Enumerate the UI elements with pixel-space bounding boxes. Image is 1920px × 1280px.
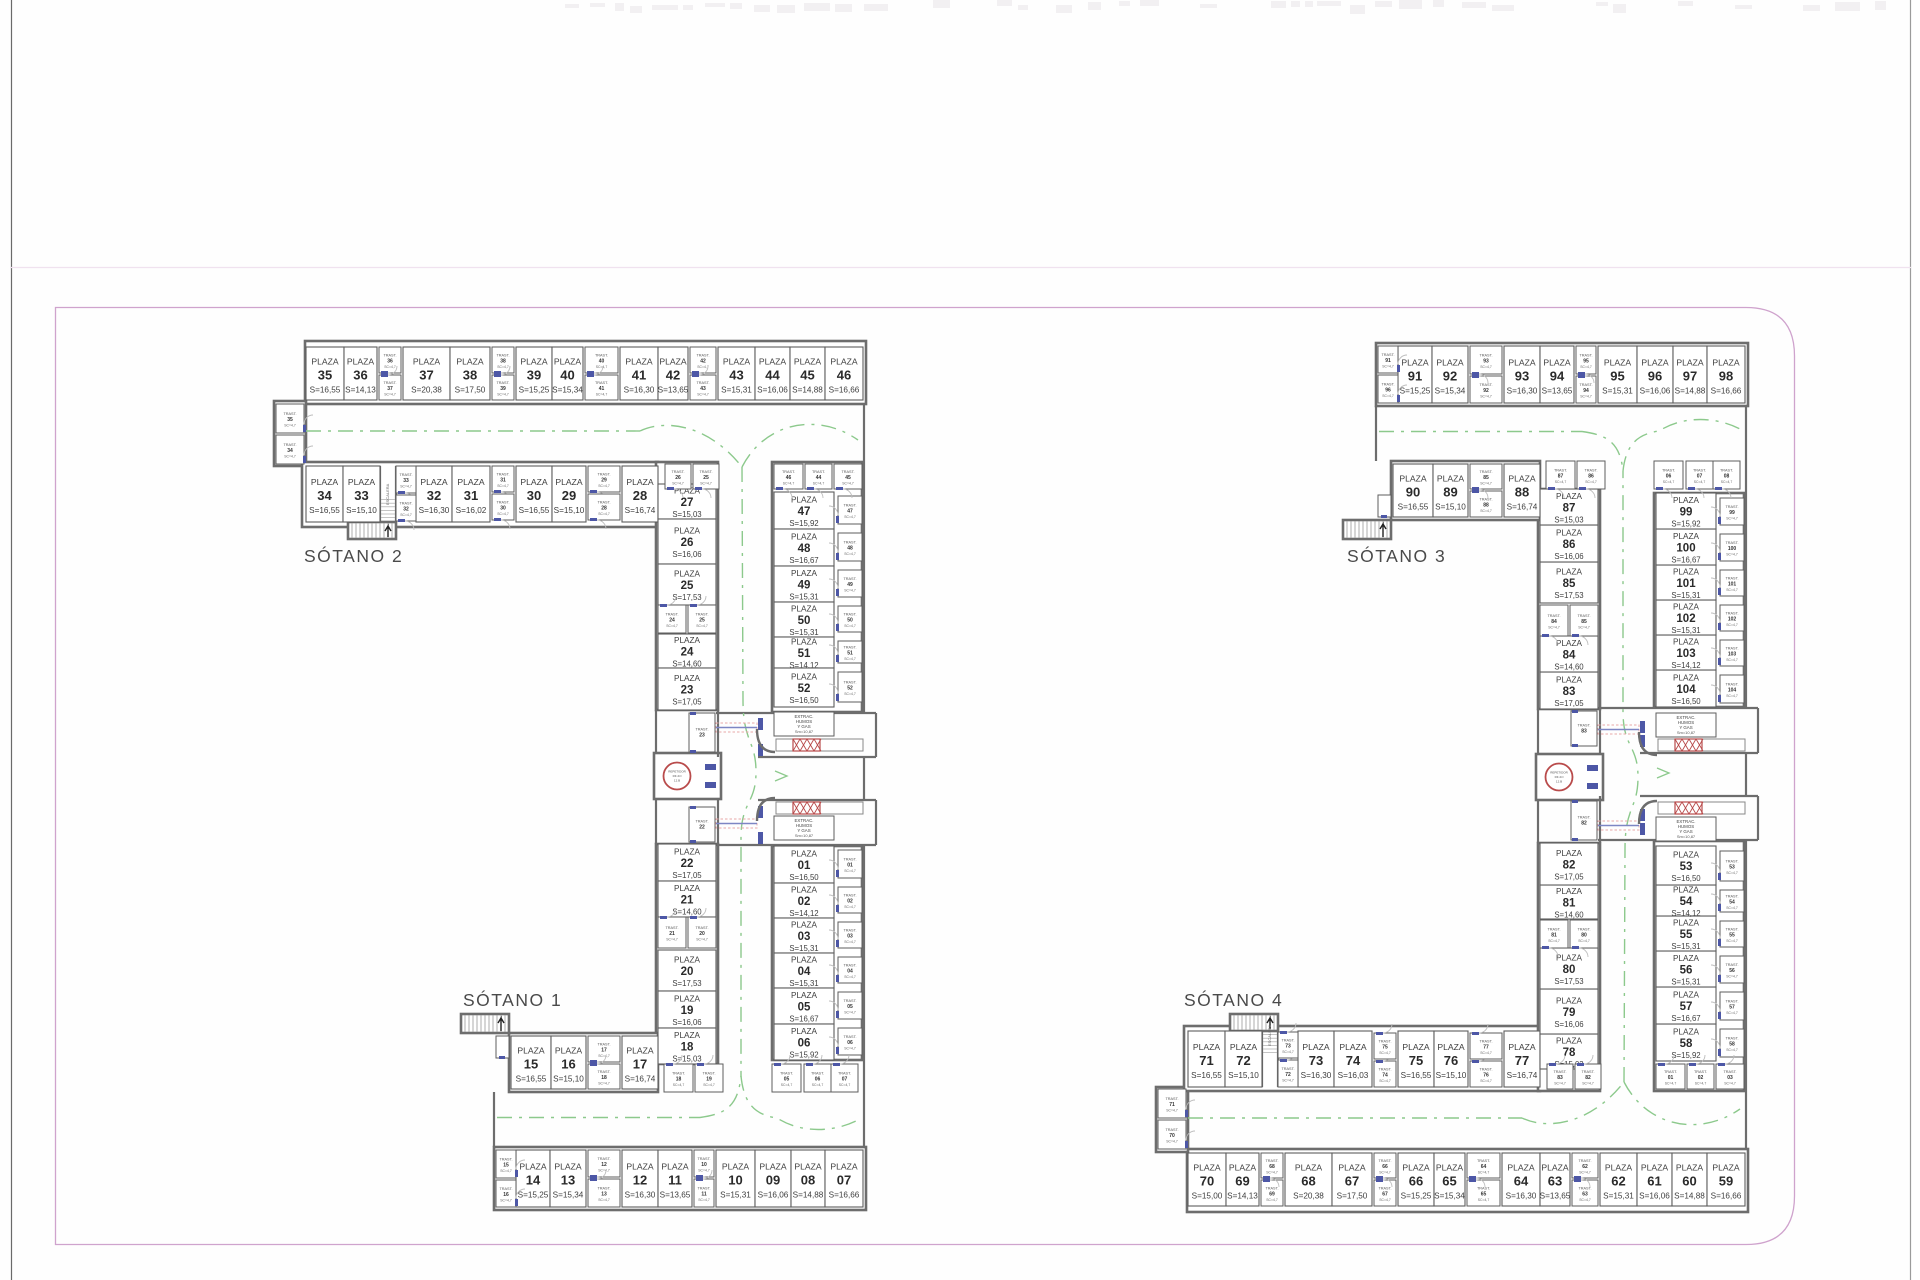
svg-text:SC=4,7: SC=4,7 <box>497 512 509 516</box>
svg-text:SC=4,7: SC=4,7 <box>497 365 509 369</box>
svg-text:08: 08 <box>1724 474 1730 480</box>
svg-text:S=16,30: S=16,30 <box>1507 387 1538 396</box>
svg-text:45: 45 <box>800 368 814 383</box>
svg-text:SC=4,7: SC=4,7 <box>703 1083 715 1087</box>
svg-text:S=17,05: S=17,05 <box>1554 873 1584 882</box>
svg-text:65: 65 <box>1481 1192 1487 1198</box>
svg-text:TRAST.: TRAST. <box>1723 1070 1736 1074</box>
svg-text:S=15,34: S=15,34 <box>552 386 583 395</box>
svg-text:S=15,25: S=15,25 <box>518 1191 549 1200</box>
svg-text:S=16,67: S=16,67 <box>1671 1014 1700 1023</box>
svg-text:SÓTANO 2: SÓTANO 2 <box>304 545 403 566</box>
svg-text:70: 70 <box>1200 1174 1214 1189</box>
svg-text:15: 15 <box>503 1163 509 1169</box>
svg-text:14: 14 <box>526 1173 541 1188</box>
svg-text:84: 84 <box>1551 619 1557 625</box>
svg-text:S=16,30: S=16,30 <box>1301 1071 1332 1080</box>
svg-text:S=14,88: S=14,88 <box>793 1191 824 1200</box>
svg-text:29: 29 <box>562 488 576 503</box>
svg-text:20: 20 <box>681 966 694 978</box>
svg-text:01: 01 <box>1668 1075 1674 1081</box>
svg-text:PLAZA: PLAZA <box>674 636 700 645</box>
svg-text:TRAST.: TRAST. <box>1662 469 1675 473</box>
svg-text:PLAZA: PLAZA <box>311 357 338 367</box>
svg-text:54: 54 <box>1680 896 1693 908</box>
svg-text:SC=4,7: SC=4,7 <box>697 365 709 369</box>
svg-text:74: 74 <box>1382 1073 1388 1079</box>
svg-text:S=15,31: S=15,31 <box>789 593 818 602</box>
svg-text:SC=4,7: SC=4,7 <box>696 624 708 628</box>
svg-text:S=16,06: S=16,06 <box>672 1018 701 1027</box>
svg-text:PLAZA: PLAZA <box>1193 1163 1220 1173</box>
svg-text:56: 56 <box>1680 965 1693 977</box>
svg-text:17: 17 <box>601 1048 607 1054</box>
svg-text:32: 32 <box>403 507 409 513</box>
svg-text:28: 28 <box>601 506 607 512</box>
svg-text:22: 22 <box>681 858 694 870</box>
svg-text:S=15,31: S=15,31 <box>789 628 818 637</box>
svg-text:SC=4,7: SC=4,7 <box>598 512 610 516</box>
svg-text:TRAST.: TRAST. <box>1547 614 1560 618</box>
svg-text:RF-ICI: RF-ICI <box>1555 775 1564 779</box>
svg-text:93: 93 <box>1515 369 1529 384</box>
svg-text:60: 60 <box>1682 1174 1696 1189</box>
svg-text:PLAZA: PLAZA <box>555 1046 582 1056</box>
svg-text:PLAZA: PLAZA <box>1437 474 1464 484</box>
svg-text:11: 11 <box>701 1192 707 1198</box>
svg-text:PLAZA: PLAZA <box>519 1162 546 1172</box>
svg-text:S=16,06: S=16,06 <box>672 550 701 559</box>
svg-text:80: 80 <box>1581 933 1587 939</box>
svg-text:SC=4,7: SC=4,7 <box>1726 1011 1738 1015</box>
svg-text:PLAZA: PLAZA <box>791 956 817 965</box>
svg-text:TRAST.: TRAST. <box>780 1072 793 1076</box>
svg-text:TRAST.: TRAST. <box>1479 1068 1492 1072</box>
svg-text:TRAST.: TRAST. <box>843 858 856 862</box>
svg-text:S=15,34: S=15,34 <box>553 1191 584 1200</box>
svg-text:TRAST.: TRAST. <box>1479 470 1492 474</box>
svg-text:18: 18 <box>601 1075 607 1081</box>
svg-text:41: 41 <box>599 386 605 392</box>
svg-text:28: 28 <box>633 488 647 503</box>
svg-text:72: 72 <box>1236 1053 1250 1068</box>
svg-text:SC=4,7: SC=4,7 <box>1382 394 1394 398</box>
svg-text:SC=4,7: SC=4,7 <box>284 455 296 459</box>
svg-text:S=16,30: S=16,30 <box>625 1191 656 1200</box>
svg-text:PLAZA: PLAZA <box>1556 529 1582 538</box>
svg-text:85: 85 <box>1563 578 1576 590</box>
svg-text:97: 97 <box>1683 369 1697 384</box>
svg-text:TRAST.: TRAST. <box>843 894 856 898</box>
svg-text:53: 53 <box>1729 865 1735 871</box>
svg-text:PLAZA: PLAZA <box>1556 639 1582 648</box>
svg-text:PLAZA: PLAZA <box>1673 991 1699 1000</box>
svg-text:PLAZA: PLAZA <box>791 569 817 578</box>
svg-text:54: 54 <box>1729 900 1735 906</box>
svg-text:PLAZA: PLAZA <box>1673 919 1699 928</box>
svg-text:TRAST.: TRAST. <box>696 381 709 385</box>
svg-text:PLAZA: PLAZA <box>517 1046 544 1056</box>
svg-text:SC=4,7: SC=4,7 <box>1266 1198 1278 1202</box>
svg-text:SC=4,7: SC=4,7 <box>844 975 856 979</box>
svg-text:S=13,65: S=13,65 <box>660 1191 691 1200</box>
svg-text:SC=4,7: SC=4,7 <box>1580 365 1592 369</box>
svg-text:SC=4,7: SC=4,7 <box>1726 939 1738 943</box>
svg-text:SC=4,7: SC=4,7 <box>844 869 856 873</box>
svg-text:30: 30 <box>527 488 541 503</box>
svg-text:PLAZA: PLAZA <box>674 848 700 857</box>
svg-text:61: 61 <box>1647 1174 1661 1189</box>
svg-text:S=16,30: S=16,30 <box>419 506 450 515</box>
svg-text:03: 03 <box>847 934 853 940</box>
svg-text:TRAST.: TRAST. <box>843 504 856 508</box>
svg-text:PLAZA: PLAZA <box>1436 358 1463 368</box>
svg-text:TRAST.: TRAST. <box>1725 1000 1738 1004</box>
svg-text:TRAST.: TRAST. <box>1725 647 1738 651</box>
svg-text:S=14,12: S=14,12 <box>1671 661 1700 670</box>
svg-text:SC=4,7: SC=4,7 <box>697 393 709 397</box>
svg-text:SC=4,7: SC=4,7 <box>1554 1082 1566 1086</box>
svg-text:TRAST.: TRAST. <box>1165 1097 1178 1101</box>
svg-text:SC=4,7: SC=4,7 <box>1548 939 1560 943</box>
svg-text:24: 24 <box>681 647 694 659</box>
svg-text:SC=4,7: SC=4,7 <box>844 657 856 661</box>
svg-text:S=16,30: S=16,30 <box>1506 1192 1537 1201</box>
svg-text:PLAZA: PLAZA <box>1605 1163 1632 1173</box>
svg-text:TRAST.: TRAST. <box>665 926 678 930</box>
svg-text:34: 34 <box>287 448 293 454</box>
svg-text:S=17,53: S=17,53 <box>1554 591 1583 600</box>
svg-text:71: 71 <box>1169 1102 1175 1108</box>
svg-text:07: 07 <box>842 1077 848 1083</box>
svg-text:TRAST.: TRAST. <box>399 473 412 477</box>
svg-text:18: 18 <box>681 1042 694 1054</box>
svg-text:SC=4,7: SC=4,7 <box>1578 939 1590 943</box>
svg-text:SC=4,7: SC=4,7 <box>1266 1171 1278 1175</box>
svg-text:SC=4,7: SC=4,7 <box>698 1169 710 1173</box>
svg-text:37: 37 <box>419 368 433 383</box>
svg-text:PLAZA: PLAZA <box>1673 674 1699 683</box>
svg-text:TRAST.: TRAST. <box>696 354 709 358</box>
svg-text:PLAZA: PLAZA <box>348 477 375 487</box>
svg-text:S=17,53: S=17,53 <box>672 979 701 988</box>
svg-text:06: 06 <box>815 1077 821 1083</box>
svg-text:PLAZA: PLAZA <box>674 570 700 579</box>
svg-text:69: 69 <box>1269 1192 1275 1198</box>
svg-text:TRAST.: TRAST. <box>1378 1159 1391 1163</box>
svg-text:56: 56 <box>1729 968 1735 974</box>
svg-text:TRAST.: TRAST. <box>811 1072 824 1076</box>
svg-text:S=14,12: S=14,12 <box>789 909 818 918</box>
svg-text:TRAST.: TRAST. <box>1265 1159 1278 1163</box>
svg-text:TRAST.: TRAST. <box>383 381 396 385</box>
svg-text:SC=4,7: SC=4,7 <box>1555 480 1567 484</box>
svg-text:69: 69 <box>1235 1174 1249 1189</box>
svg-text:TRAST.: TRAST. <box>399 502 412 506</box>
svg-text:S=16,06: S=16,06 <box>1639 1192 1670 1201</box>
svg-text:06: 06 <box>798 1038 811 1050</box>
svg-text:73: 73 <box>1285 1044 1291 1050</box>
svg-text:81: 81 <box>1563 898 1576 910</box>
svg-text:PLAZA: PLAZA <box>1339 1042 1366 1052</box>
svg-text:S=16,66: S=16,66 <box>829 1191 860 1200</box>
svg-text:TRAST.: TRAST. <box>1694 1070 1707 1074</box>
svg-text:71: 71 <box>1199 1053 1213 1068</box>
svg-text:SC=4,7: SC=4,7 <box>596 393 608 397</box>
svg-text:PLAZA: PLAZA <box>1556 954 1582 963</box>
svg-text:12: 12 <box>601 1162 607 1168</box>
svg-text:TRAST.: TRAST. <box>1378 1187 1391 1191</box>
svg-text:TRAST.: TRAST. <box>1165 1128 1178 1132</box>
svg-text:S=15,31: S=15,31 <box>720 1191 751 1200</box>
svg-text:91: 91 <box>1385 358 1391 364</box>
svg-text:31: 31 <box>500 478 506 484</box>
svg-text:SC=4,7: SC=4,7 <box>1166 1109 1178 1113</box>
svg-text:SC=4,7: SC=4,7 <box>844 1047 856 1051</box>
svg-text:TRAST.: TRAST. <box>1547 928 1560 932</box>
svg-text:02: 02 <box>847 899 853 905</box>
svg-text:59: 59 <box>1719 1174 1733 1189</box>
svg-text:08: 08 <box>801 1173 815 1188</box>
svg-text:SC=4,7: SC=4,7 <box>1480 482 1492 486</box>
svg-text:SC=4,7: SC=4,7 <box>1282 1050 1294 1054</box>
svg-text:PLAZA: PLAZA <box>674 884 700 893</box>
svg-text:12.B: 12.B <box>674 779 680 783</box>
svg-text:TRAST.: TRAST. <box>843 577 856 581</box>
svg-text:PLAZA: PLAZA <box>1193 1042 1220 1052</box>
svg-text:PLAZA: PLAZA <box>659 357 686 367</box>
svg-text:TRAST.: TRAST. <box>1477 1159 1490 1163</box>
svg-text:S=15,00: S=15,00 <box>1192 1192 1223 1201</box>
svg-text:REPETIDOR: REPETIDOR <box>668 770 686 774</box>
svg-text:57: 57 <box>1680 1001 1693 1013</box>
svg-text:S=14,88: S=14,88 <box>1674 1192 1705 1201</box>
svg-text:SC=4,7: SC=4,7 <box>1726 871 1738 875</box>
svg-text:70: 70 <box>1169 1133 1175 1139</box>
svg-text:82: 82 <box>1585 1075 1591 1081</box>
svg-text:38: 38 <box>500 359 506 365</box>
svg-text:PLAZA: PLAZA <box>1230 1042 1257 1052</box>
svg-text:TRAST.: TRAST. <box>1725 860 1738 864</box>
svg-text:PLAZA: PLAZA <box>1402 1042 1429 1052</box>
svg-text:50: 50 <box>847 618 853 624</box>
svg-text:PLAZA: PLAZA <box>1673 886 1699 895</box>
svg-text:TRAST.: TRAST. <box>843 681 856 685</box>
svg-text:PLAZA: PLAZA <box>791 638 817 647</box>
svg-text:S=16,50: S=16,50 <box>789 696 819 705</box>
svg-text:S=16,06: S=16,06 <box>1640 387 1671 396</box>
svg-text:PLAZA: PLAZA <box>554 1162 581 1172</box>
svg-text:S=16,74: S=16,74 <box>1507 1071 1538 1080</box>
svg-text:S=17,53: S=17,53 <box>672 593 701 602</box>
svg-text:25: 25 <box>703 475 709 481</box>
svg-text:24: 24 <box>669 618 675 624</box>
svg-text:TRAST.: TRAST. <box>1579 354 1592 358</box>
svg-text:15: 15 <box>524 1057 538 1072</box>
svg-text:SC=4,7: SC=4,7 <box>1578 626 1590 630</box>
svg-text:S=16,50: S=16,50 <box>1671 697 1701 706</box>
svg-text:S=16,55: S=16,55 <box>1398 503 1429 512</box>
svg-text:SC=4,7: SC=4,7 <box>1478 1171 1490 1175</box>
svg-text:SC=4,7: SC=4,7 <box>844 624 856 628</box>
svg-text:67: 67 <box>1345 1174 1359 1189</box>
svg-text:PLAZA: PLAZA <box>1556 676 1582 685</box>
svg-text:PLAZA: PLAZA <box>674 527 700 536</box>
svg-text:Sm=10,87: Sm=10,87 <box>1677 730 1696 735</box>
svg-text:98: 98 <box>1719 369 1733 384</box>
svg-text:03: 03 <box>798 931 811 943</box>
svg-text:S=16,74: S=16,74 <box>625 506 656 515</box>
svg-text:46: 46 <box>837 368 851 383</box>
svg-text:104: 104 <box>1728 688 1737 694</box>
svg-text:93: 93 <box>1483 359 1489 365</box>
svg-text:77: 77 <box>1515 1053 1529 1068</box>
svg-text:77: 77 <box>1483 1045 1489 1051</box>
svg-text:87: 87 <box>1558 474 1564 480</box>
svg-text:S=13,65: S=13,65 <box>1542 387 1573 396</box>
svg-text:103: 103 <box>1728 652 1737 658</box>
svg-text:PLAZA: PLAZA <box>1556 997 1582 1006</box>
svg-text:S=15,25: S=15,25 <box>519 386 550 395</box>
svg-text:S=17,53: S=17,53 <box>1554 977 1583 986</box>
svg-text:PLAZA: PLAZA <box>1556 1037 1582 1046</box>
svg-text:PLAZA: PLAZA <box>1556 492 1582 501</box>
svg-text:SC=4,7: SC=4,7 <box>1726 517 1738 521</box>
svg-text:SC=4,7: SC=4,7 <box>400 485 412 489</box>
svg-text:37: 37 <box>387 386 393 392</box>
svg-text:Sm=10,87: Sm=10,87 <box>1677 834 1696 839</box>
svg-text:PLAZA: PLAZA <box>520 357 547 367</box>
svg-text:49: 49 <box>847 582 853 588</box>
svg-text:S=16,67: S=16,67 <box>789 1015 818 1024</box>
svg-text:TRAST.: TRAST. <box>1479 383 1492 387</box>
svg-text:63: 63 <box>1548 1174 1562 1189</box>
svg-text:91: 91 <box>1408 369 1422 384</box>
svg-text:86: 86 <box>1563 539 1576 551</box>
svg-text:PLAZA: PLAZA <box>626 477 653 487</box>
svg-text:TRAST.: TRAST. <box>1281 1039 1294 1043</box>
svg-text:23: 23 <box>681 685 694 697</box>
svg-text:TRAST.: TRAST. <box>1725 928 1738 932</box>
svg-text:PLAZA: PLAZA <box>1556 568 1582 577</box>
svg-text:TRAST.: TRAST. <box>843 999 856 1003</box>
svg-text:TRAST.: TRAST. <box>597 1043 610 1047</box>
svg-text:TRAST.: TRAST. <box>1281 1067 1294 1071</box>
svg-text:SC=4,7: SC=4,7 <box>781 1083 793 1087</box>
svg-text:TRAST.: TRAST. <box>1577 816 1590 820</box>
svg-text:TRAST.: TRAST. <box>843 613 856 617</box>
svg-text:PLAZA: PLAZA <box>1673 954 1699 963</box>
svg-text:PLAZA: PLAZA <box>1229 1163 1256 1173</box>
svg-text:S=16,55: S=16,55 <box>519 506 550 515</box>
svg-text:PLAZA: PLAZA <box>1399 474 1426 484</box>
svg-text:TRAST.: TRAST. <box>1693 469 1706 473</box>
svg-text:PLAZA: PLAZA <box>1556 849 1582 858</box>
svg-text:S=15,31: S=15,31 <box>789 979 818 988</box>
svg-text:SC=4,7: SC=4,7 <box>500 1199 512 1203</box>
svg-text:21: 21 <box>681 895 694 907</box>
svg-text:100: 100 <box>1728 546 1737 552</box>
svg-text:SC=4,7: SC=4,7 <box>1480 1051 1492 1055</box>
svg-text:REPETIDOR: REPETIDOR <box>1550 771 1568 775</box>
svg-text:58: 58 <box>1680 1038 1693 1050</box>
svg-text:19: 19 <box>681 1005 694 1017</box>
svg-text:SC=4,7: SC=4,7 <box>1585 480 1597 484</box>
svg-text:SC=4,7: SC=4,7 <box>598 1169 610 1173</box>
svg-text:85: 85 <box>1581 619 1587 625</box>
svg-text:PLAZA: PLAZA <box>1401 358 1428 368</box>
svg-text:PLAZA: PLAZA <box>1673 496 1699 505</box>
svg-text:68: 68 <box>1269 1164 1275 1170</box>
svg-text:TRAST.: TRAST. <box>697 1157 710 1161</box>
svg-text:S=16,06: S=16,06 <box>758 1191 789 1200</box>
svg-text:66: 66 <box>1382 1164 1388 1170</box>
svg-text:PLAZA: PLAZA <box>1541 1163 1568 1173</box>
svg-text:Sm=10,87: Sm=10,87 <box>795 833 814 838</box>
svg-text:TRAST.: TRAST. <box>843 964 856 968</box>
svg-text:SC=4,7: SC=4,7 <box>1478 1198 1490 1202</box>
svg-text:29: 29 <box>601 478 607 484</box>
svg-text:SC=4,7: SC=4,7 <box>672 482 684 486</box>
svg-text:42: 42 <box>700 359 706 365</box>
svg-text:50: 50 <box>798 615 811 627</box>
svg-text:PLAZA: PLAZA <box>1437 1042 1464 1052</box>
svg-text:PLAZA: PLAZA <box>1712 358 1739 368</box>
svg-text:46: 46 <box>786 475 792 481</box>
svg-text:06: 06 <box>1666 474 1672 480</box>
svg-text:PLAZA: PLAZA <box>420 477 447 487</box>
svg-text:06: 06 <box>847 1040 853 1046</box>
svg-text:PLAZA: PLAZA <box>1673 603 1699 612</box>
svg-text:SC=4,7: SC=4,7 <box>1721 480 1733 484</box>
svg-text:SC=4,7: SC=4,7 <box>500 1169 512 1173</box>
svg-text:TRAST.: TRAST. <box>597 1070 610 1074</box>
svg-text:TRAST.: TRAST. <box>697 1187 710 1191</box>
svg-text:S=20,38: S=20,38 <box>411 386 442 395</box>
svg-text:SC=4,7: SC=4,7 <box>666 938 678 942</box>
svg-text:SC=4,7: SC=4,7 <box>1726 975 1738 979</box>
svg-text:TRAST.: TRAST. <box>1554 469 1567 473</box>
svg-text:SC=4,7: SC=4,7 <box>1726 588 1738 592</box>
svg-text:26: 26 <box>675 475 681 481</box>
svg-text:TRAST.: TRAST. <box>1381 353 1394 357</box>
svg-text:S=15,10: S=15,10 <box>1435 503 1466 512</box>
svg-text:SÓTANO 4: SÓTANO 4 <box>1184 989 1283 1010</box>
svg-text:S=14,60: S=14,60 <box>672 660 702 669</box>
svg-text:48: 48 <box>798 543 811 555</box>
svg-text:99: 99 <box>1680 507 1693 519</box>
svg-text:33: 33 <box>403 478 409 484</box>
svg-text:S=15,10: S=15,10 <box>553 1075 584 1084</box>
svg-text:TRAST.: TRAST. <box>496 354 509 358</box>
svg-text:PLAZA: PLAZA <box>1507 1163 1534 1173</box>
svg-text:TRAST.: TRAST. <box>1581 1070 1594 1074</box>
svg-text:SC=4,7: SC=4,7 <box>1580 395 1592 399</box>
svg-text:SC=4,7: SC=4,7 <box>1694 480 1706 484</box>
svg-text:SC=4,7: SC=4,7 <box>844 552 856 556</box>
svg-text:05: 05 <box>847 1004 853 1010</box>
svg-text:40: 40 <box>560 368 574 383</box>
svg-text:83: 83 <box>1581 729 1587 735</box>
svg-text:PLAZA: PLAZA <box>759 357 786 367</box>
svg-text:86: 86 <box>1588 474 1594 480</box>
svg-text:S=15,31: S=15,31 <box>789 944 818 953</box>
svg-text:67: 67 <box>1382 1192 1388 1198</box>
svg-text:S=13,65: S=13,65 <box>1540 1192 1571 1201</box>
svg-text:S=14,60: S=14,60 <box>672 908 702 917</box>
svg-text:TRAST.: TRAST. <box>1725 577 1738 581</box>
svg-text:SC=4,7: SC=4,7 <box>783 482 795 486</box>
